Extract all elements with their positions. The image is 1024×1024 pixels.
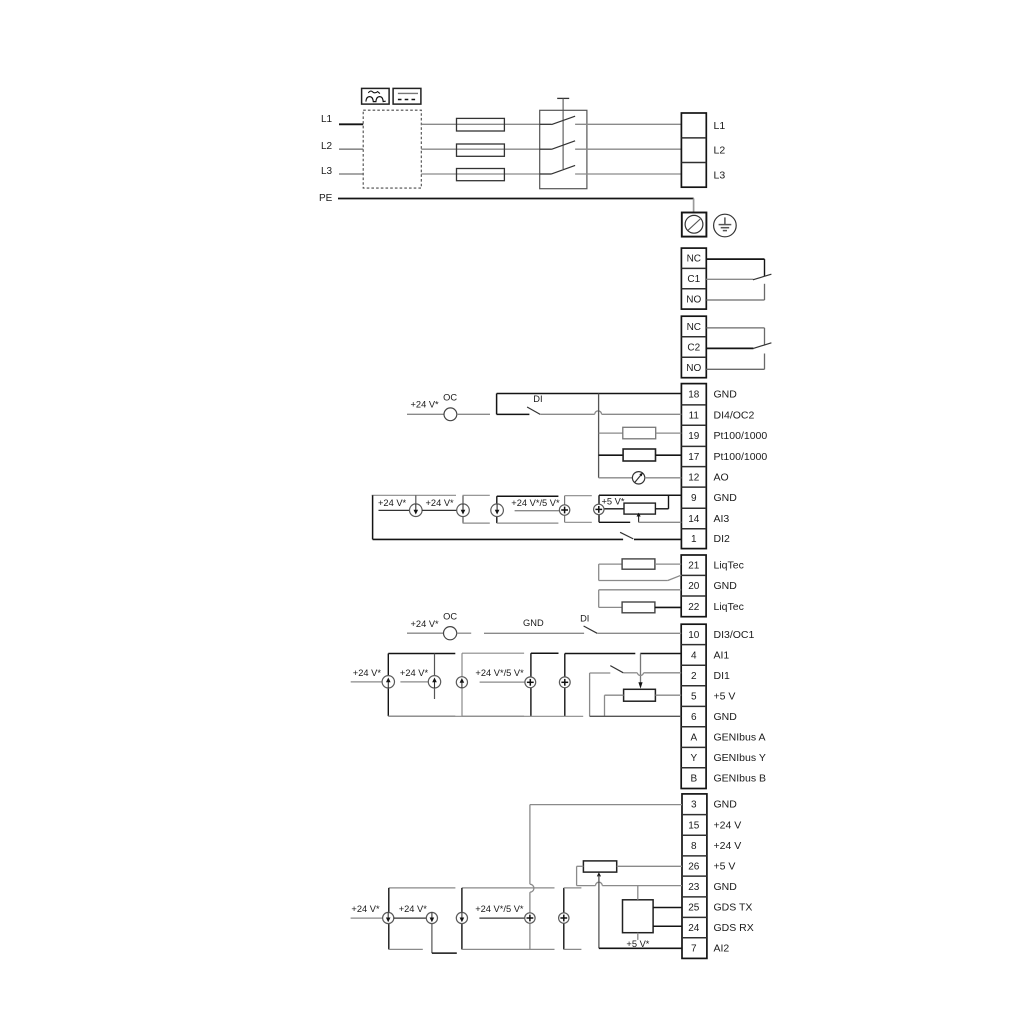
svg-text:NO: NO (686, 363, 701, 374)
svg-text:L1: L1 (714, 120, 726, 132)
svg-text:18: 18 (688, 390, 700, 401)
svg-text:DI3/OC1: DI3/OC1 (714, 629, 755, 641)
svg-text:+24 V: +24 V (714, 840, 742, 852)
svg-text:+5 V: +5 V (714, 860, 736, 872)
svg-text:+24 V*: +24 V* (378, 498, 407, 508)
svg-text:Pt100/1000: Pt100/1000 (714, 430, 768, 442)
svg-text:26: 26 (688, 861, 700, 872)
svg-text:OC: OC (443, 393, 457, 403)
svg-text:LiqTec: LiqTec (714, 560, 744, 572)
svg-text:+5 V*: +5 V* (626, 939, 649, 949)
svg-text:14: 14 (688, 514, 700, 525)
svg-text:+24 V*: +24 V* (411, 400, 440, 410)
svg-text:AO: AO (714, 471, 729, 483)
svg-text:DI2: DI2 (714, 533, 731, 545)
svg-text:DI: DI (533, 394, 542, 404)
svg-text:4: 4 (691, 650, 697, 661)
svg-text:5: 5 (691, 691, 697, 702)
svg-text:GENIbus Y: GENIbus Y (714, 752, 766, 764)
svg-text:AI1: AI1 (714, 649, 730, 661)
svg-text:GND: GND (714, 799, 738, 811)
svg-text:C2: C2 (687, 342, 700, 353)
svg-text:2: 2 (691, 671, 697, 682)
svg-text:10: 10 (688, 630, 700, 641)
svg-text:NO: NO (686, 294, 701, 305)
svg-text:+24 V*/5 V*: +24 V*/5 V* (511, 498, 560, 508)
svg-text:+24 V*: +24 V* (351, 904, 380, 914)
svg-text:15: 15 (688, 820, 700, 831)
svg-text:NC: NC (687, 322, 701, 333)
svg-text:9: 9 (691, 493, 697, 504)
svg-text:GND: GND (714, 881, 738, 893)
svg-text:GENIbus A: GENIbus A (714, 732, 766, 744)
svg-text:+5 V*: +5 V* (602, 496, 625, 506)
svg-text:1: 1 (691, 534, 697, 545)
svg-text:+24 V*/5 V*: +24 V*/5 V* (475, 668, 524, 678)
svg-text:L2: L2 (714, 145, 726, 157)
svg-text:11: 11 (689, 410, 700, 421)
svg-text:24: 24 (688, 923, 700, 934)
svg-text:L3: L3 (714, 169, 726, 181)
svg-text:GND: GND (714, 389, 738, 401)
svg-text:23: 23 (688, 882, 700, 893)
svg-text:20: 20 (688, 581, 700, 592)
svg-text:DI1: DI1 (714, 670, 731, 682)
svg-text:A: A (690, 733, 697, 744)
svg-text:AI2: AI2 (714, 943, 730, 955)
svg-text:6: 6 (691, 712, 697, 723)
svg-text:+24 V: +24 V (714, 819, 742, 831)
svg-text:+24 V*: +24 V* (353, 668, 382, 678)
svg-text:GND: GND (714, 711, 738, 723)
svg-text:C1: C1 (687, 274, 700, 285)
svg-text:22: 22 (688, 602, 700, 613)
svg-text:+24 V*: +24 V* (399, 904, 428, 914)
svg-text:19: 19 (688, 431, 700, 442)
svg-text:21: 21 (688, 561, 700, 572)
svg-text:Pt100/1000: Pt100/1000 (714, 451, 768, 463)
svg-text:+24 V*/5 V*: +24 V*/5 V* (475, 904, 524, 914)
svg-text:Y: Y (690, 753, 697, 764)
svg-text:12: 12 (688, 472, 700, 483)
svg-text:GND: GND (714, 580, 738, 592)
svg-text:GND: GND (523, 618, 544, 628)
svg-text:AI3: AI3 (714, 513, 730, 525)
svg-text:8: 8 (691, 841, 697, 852)
svg-text:25: 25 (688, 903, 700, 914)
svg-text:+5 V: +5 V (714, 690, 736, 702)
svg-text:+24 V*: +24 V* (411, 619, 440, 629)
svg-text:GDS RX: GDS RX (714, 922, 754, 934)
svg-text:3: 3 (691, 800, 697, 811)
svg-text:+24 V*: +24 V* (426, 498, 455, 508)
svg-text:GENIbus B: GENIbus B (714, 773, 767, 785)
svg-text:17: 17 (688, 452, 700, 463)
svg-text:NC: NC (687, 254, 701, 265)
svg-text:GND: GND (714, 492, 738, 504)
svg-text:L1: L1 (321, 114, 333, 125)
svg-text:B: B (690, 774, 697, 785)
svg-text:+24 V*: +24 V* (400, 668, 429, 678)
svg-text:PE: PE (319, 193, 333, 204)
svg-text:L2: L2 (321, 141, 333, 152)
svg-text:GDS TX: GDS TX (714, 902, 753, 914)
svg-text:LiqTec: LiqTec (714, 601, 744, 613)
svg-text:DI4/OC2: DI4/OC2 (714, 409, 755, 421)
svg-text:L3: L3 (321, 166, 333, 177)
svg-text:DI: DI (580, 614, 589, 624)
svg-text:OC: OC (443, 612, 457, 622)
svg-text:7: 7 (691, 944, 697, 955)
